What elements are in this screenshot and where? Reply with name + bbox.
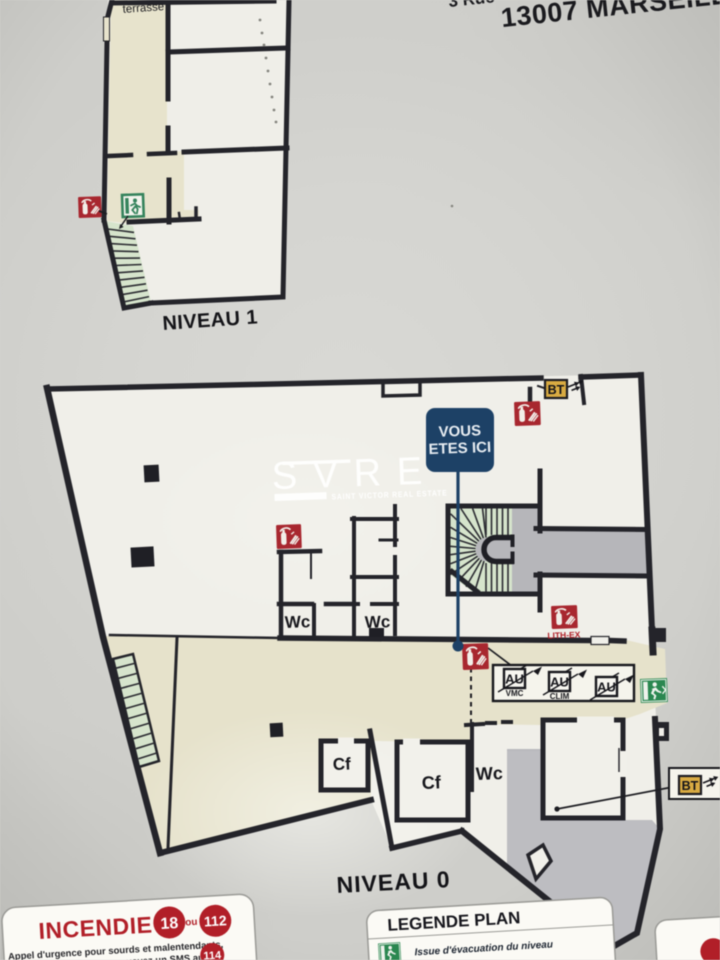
svg-text:AU: AU <box>550 675 569 690</box>
svg-text:VMC: VMC <box>506 689 524 698</box>
svg-text:ou: ou <box>185 917 198 929</box>
svg-text:114: 114 <box>203 949 222 960</box>
svg-text:AU: AU <box>597 680 616 695</box>
svg-text:BT: BT <box>682 779 699 793</box>
svg-text:Wc: Wc <box>364 612 390 632</box>
svg-text:Cf: Cf <box>421 772 442 793</box>
svg-text:112: 112 <box>204 912 228 929</box>
svg-text:VOUS: VOUS <box>438 422 481 440</box>
svg-text:LITH-EX: LITH-EX <box>547 629 581 640</box>
svg-text:Wc: Wc <box>475 763 503 784</box>
svg-text:18: 18 <box>160 915 179 933</box>
svg-text:ETES ICI: ETES ICI <box>428 439 491 458</box>
svg-text:AU: AU <box>505 672 524 687</box>
svg-text:CLIM: CLIM <box>550 692 570 701</box>
svg-text:BT: BT <box>548 383 565 397</box>
svg-text:Cf: Cf <box>332 754 351 774</box>
svg-text:Wc: Wc <box>284 612 310 632</box>
